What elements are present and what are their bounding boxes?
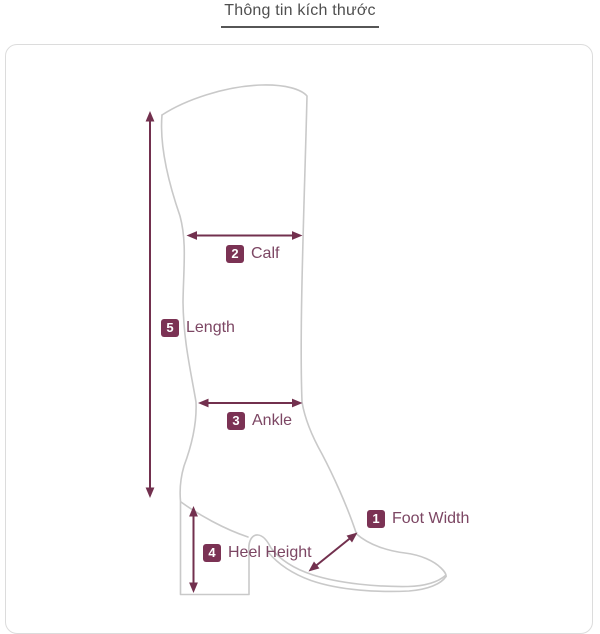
ankle-arrow: [198, 399, 303, 408]
calf-arrow: [187, 231, 303, 240]
measurement-length: 5 Length: [161, 319, 235, 337]
measurement-ankle: 3 Ankle: [227, 412, 292, 430]
size-info-section: Thông tin kích thước: [0, 0, 600, 600]
measurement-heel-height-label: Heel Height: [228, 544, 312, 562]
measurement-foot-width-label: Foot Width: [392, 510, 469, 528]
measurement-ankle-label: Ankle: [252, 412, 292, 430]
measurement-length-label: Length: [186, 319, 235, 337]
foot-width-arrow: [306, 529, 360, 575]
measurement-ankle-number: 3: [227, 412, 245, 430]
boot-measurement-diagram: [0, 0, 600, 600]
measurement-foot-width-number: 1: [367, 510, 385, 528]
measurement-heel-height: 4 Heel Height: [203, 544, 312, 562]
measurement-foot-width: 1 Foot Width: [367, 510, 469, 528]
heel-height-arrow: [189, 506, 198, 593]
measurement-length-number: 5: [161, 319, 179, 337]
measurement-calf-label: Calf: [251, 245, 279, 263]
measurement-calf: 2 Calf: [226, 245, 279, 263]
measurement-calf-number: 2: [226, 245, 244, 263]
length-arrow: [146, 111, 155, 498]
measurement-heel-height-number: 4: [203, 544, 221, 562]
